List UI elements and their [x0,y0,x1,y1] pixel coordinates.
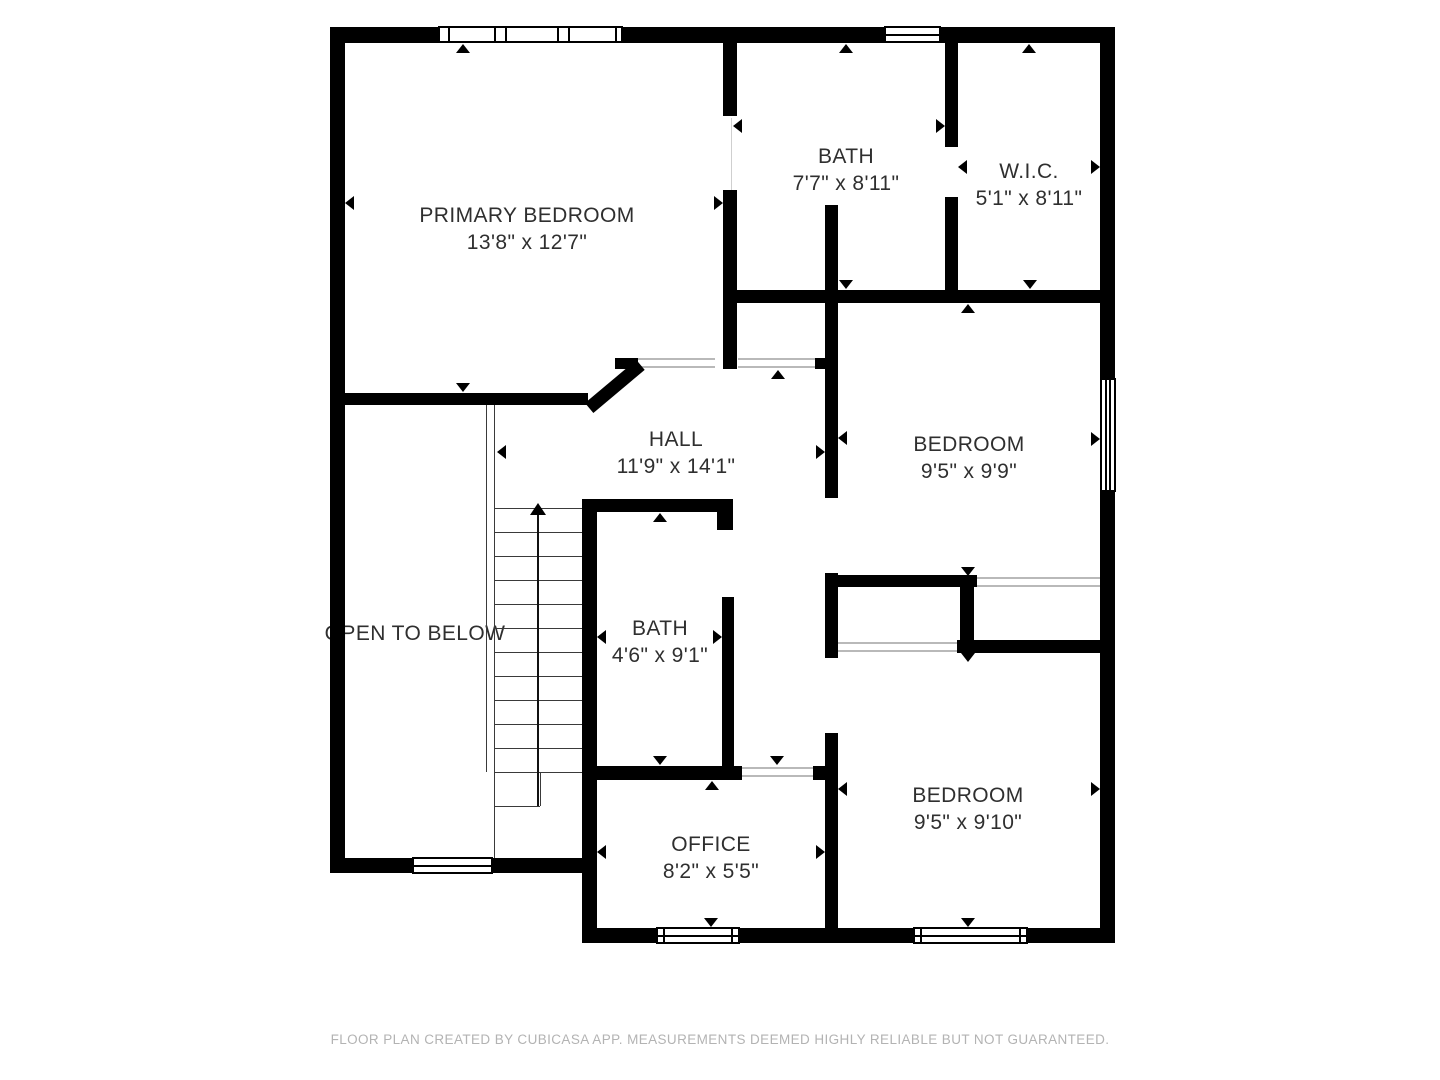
direction-marker-icon [839,280,853,289]
floorplan-canvas: PRIMARY BEDROOM13'8" x 12'7"BATH7'7" x 8… [0,0,1440,1080]
wall [825,575,977,587]
window-frame-line [494,28,496,41]
window-frame-line [663,929,665,942]
direction-marker-icon [936,119,945,133]
direction-marker-icon [704,918,718,927]
room-dims: 13'8" x 12'7" [419,229,634,256]
wall [945,197,958,302]
room-name: PRIMARY BEDROOM [419,202,634,229]
room-label: BATH7'7" x 8'11" [793,143,900,197]
window-frame-line [1105,380,1107,490]
direction-marker-icon [771,370,785,379]
room-name: BATH [612,615,708,642]
direction-marker-icon [816,445,825,459]
window [884,26,941,43]
room-label: HALL11'9" x 14'1" [617,426,736,480]
window-frame-line [615,28,617,41]
direction-marker-icon [733,119,742,133]
wall [825,733,838,943]
window-frame-line [448,28,450,41]
wall [723,290,1115,303]
window-frame-line [658,935,738,937]
stair-rail [540,772,541,806]
room-label: W.I.C.5'1" x 8'11" [976,158,1083,212]
room-name: HALL [617,426,736,453]
room-label: BEDROOM9'5" x 9'10" [912,782,1023,836]
stair-rail [494,405,495,858]
room-dims: 4'6" x 9'1" [612,642,708,669]
direction-marker-icon [345,196,354,210]
window-frame-line [505,28,507,41]
room-name: BEDROOM [913,431,1024,458]
room-label: BATH4'6" x 9'1" [612,615,708,669]
direction-marker-icon [816,845,825,859]
room-dims: 7'7" x 8'11" [793,170,900,197]
direction-marker-icon [713,630,722,644]
room-dims: 8'2" x 5'5" [663,858,759,885]
wall [722,597,734,778]
wall [723,190,737,369]
wall [717,499,733,530]
room-dims: 11'9" x 14'1" [617,453,736,480]
direction-marker-icon [456,44,470,53]
direction-marker-icon [1022,44,1036,53]
direction-marker-icon [456,383,470,392]
room-label: PRIMARY BEDROOM13'8" x 12'7" [419,202,634,256]
floorplan-page: PRIMARY BEDROOM13'8" x 12'7"BATH7'7" x 8… [0,0,1440,1080]
room-name: W.I.C. [976,158,1083,185]
room-name: BATH [793,143,900,170]
wall [330,27,345,873]
direction-marker-icon [597,845,606,859]
window-frame-line [920,929,922,942]
direction-marker-icon [1023,280,1037,289]
wall [582,499,733,512]
room-dims: 9'5" x 9'10" [912,809,1023,836]
direction-marker-icon [705,781,719,790]
wall [945,43,958,147]
opening-threshold [638,358,715,368]
window-frame-line [557,28,559,41]
window-frame-line [915,935,1026,937]
stair-direction-line [537,514,539,806]
direction-marker-icon [770,756,784,765]
window-frame-line [414,865,491,867]
window [438,26,623,43]
wall [582,499,597,943]
stair-up-arrow-icon [530,503,546,515]
room-name: BEDROOM [912,782,1023,809]
window-frame-line [886,34,939,36]
direction-marker-icon [597,630,606,644]
door-jamb-line [731,118,732,190]
wall [825,205,838,498]
room-name: OFFICE [663,831,759,858]
opening-threshold [838,642,957,652]
direction-marker-icon [653,756,667,765]
window [1100,378,1116,492]
direction-marker-icon [838,782,847,796]
wall [723,43,737,116]
wall [582,766,742,780]
direction-marker-icon [1091,160,1100,174]
window [656,927,740,944]
direction-marker-icon [961,304,975,313]
window-frame-line [1019,929,1021,942]
direction-marker-icon [497,445,506,459]
direction-marker-icon [839,44,853,53]
window-frame-line [568,28,570,41]
wall [813,766,827,780]
window [913,927,1028,944]
direction-marker-icon [961,918,975,927]
window-frame-line [1109,380,1111,490]
direction-marker-icon [1091,782,1100,796]
wall [960,575,974,645]
room-label: OFFICE8'2" x 5'5" [663,831,759,885]
window [412,857,493,874]
room-name: OPEN TO BELOW [325,620,506,647]
direction-marker-icon [961,653,975,662]
stair-landing-line [494,806,540,807]
opening-threshold [742,767,813,777]
wall [330,393,588,405]
direction-marker-icon [653,513,667,522]
direction-marker-icon [958,160,967,174]
room-label: BEDROOM9'5" x 9'9" [913,431,1024,485]
opening-threshold [738,358,815,368]
direction-marker-icon [714,196,723,210]
stair-rail [486,405,487,772]
room-dims: 5'1" x 8'11" [976,185,1083,212]
footer-disclaimer: FLOOR PLAN CREATED BY CUBICASA APP. MEAS… [0,1032,1440,1047]
wall [957,640,1103,653]
direction-marker-icon [1091,432,1100,446]
direction-marker-icon [961,567,975,576]
room-label: OPEN TO BELOW [325,620,506,647]
room-dims: 9'5" x 9'9" [913,458,1024,485]
window-frame-line [731,929,733,942]
opening-threshold [977,577,1100,587]
direction-marker-icon [838,431,847,445]
